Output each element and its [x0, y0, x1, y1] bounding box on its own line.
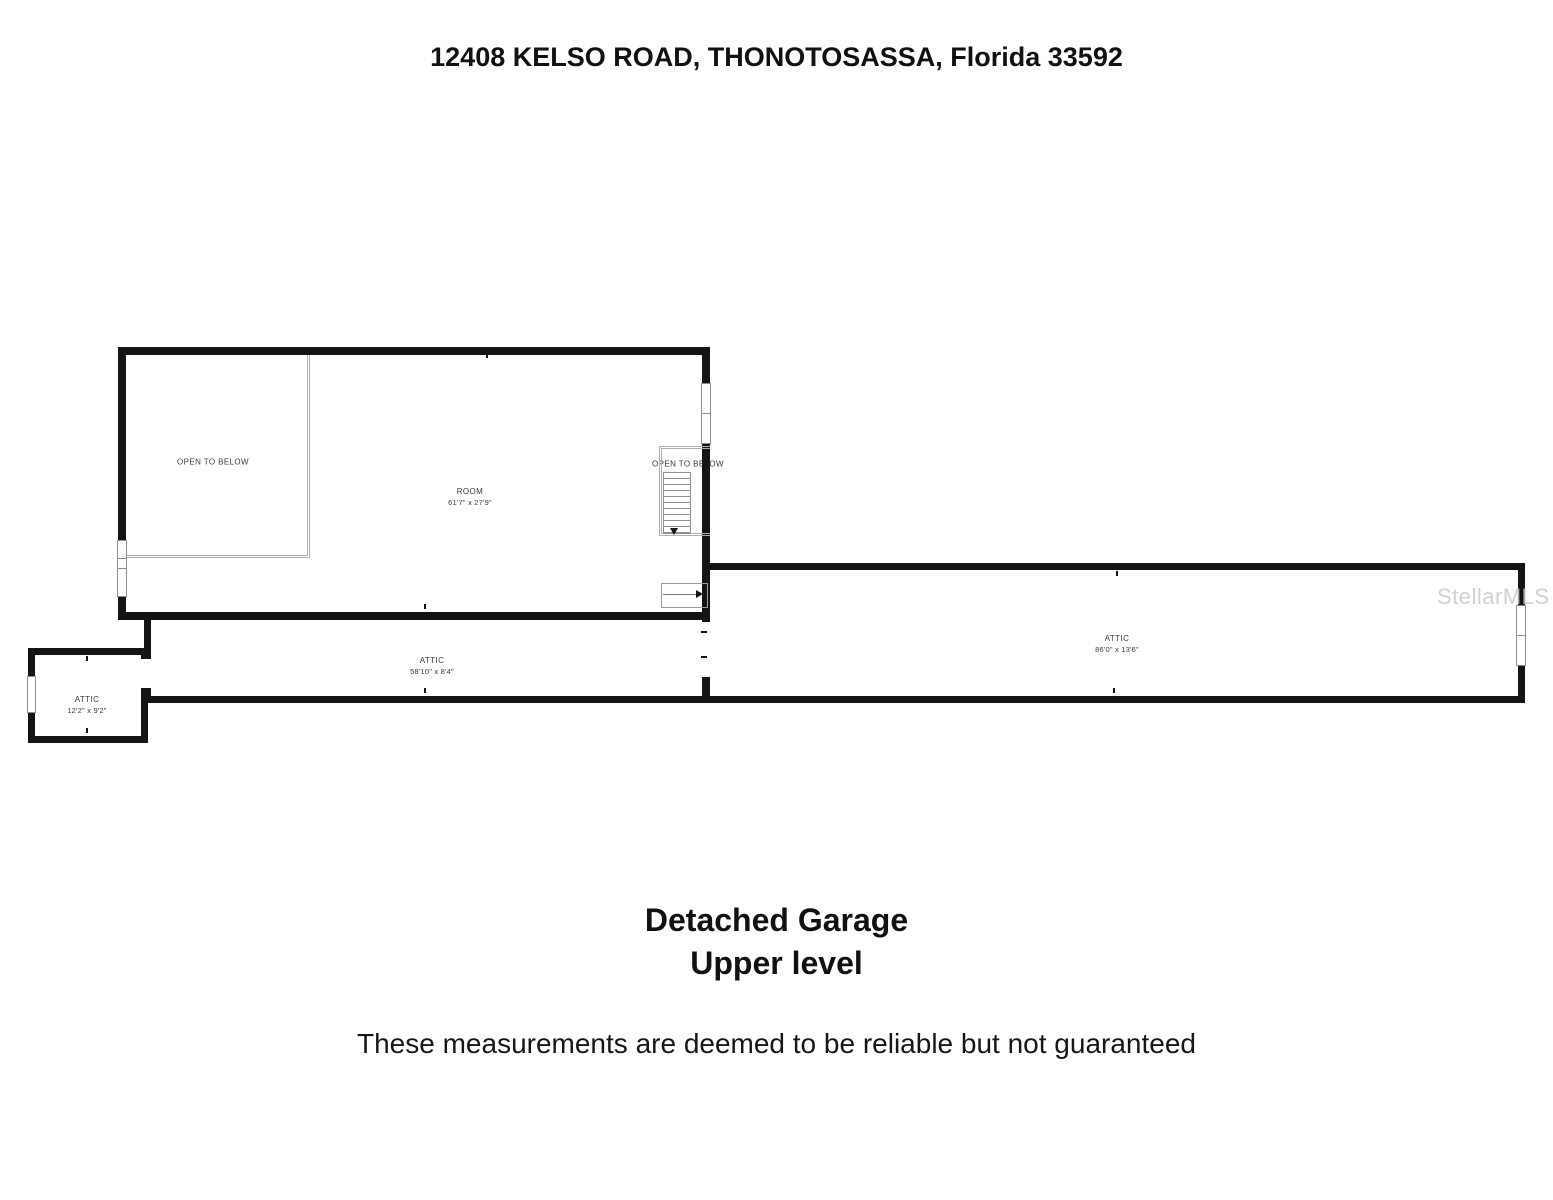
attic-access-arrow-icon: [696, 590, 703, 598]
stair-down-arrow-icon: [670, 528, 678, 535]
window-mullion: [1517, 635, 1525, 636]
wall-tick: [424, 604, 426, 609]
plan-caption: Detached Garage Upper level: [0, 899, 1553, 985]
open-to-below-outline: [126, 355, 310, 558]
caption-line2: Upper level: [0, 942, 1553, 985]
stellar-mls-watermark: StellarMLS: [1437, 584, 1550, 610]
window-main-right: [701, 383, 711, 444]
disclaimer-text: These measurements are deemed to be reli…: [0, 1028, 1553, 1060]
attic-long-walls: [144, 612, 710, 703]
caption-line1: Detached Garage: [0, 899, 1553, 942]
window-attic-small: [27, 676, 36, 713]
attic-access-line: [663, 594, 697, 595]
wall-tick: [1113, 688, 1115, 693]
window-mullion: [118, 558, 126, 559]
window-mullion: [702, 413, 710, 414]
wall-tick: [86, 656, 88, 661]
window-mullion: [118, 568, 126, 569]
wall-tick: [486, 353, 488, 358]
wall-tick: [86, 728, 88, 733]
wall-tick: [1116, 571, 1118, 576]
floor-plan: OPEN TO BELOW ROOM 61'7" x 27'9" OPEN TO…: [0, 0, 1553, 1200]
door-frame-tick: [701, 656, 707, 658]
doorway-opening-small-attic: [139, 659, 153, 688]
window-main-left: [117, 540, 127, 597]
attic-small-walls: [28, 648, 148, 743]
window-attic-right: [1516, 605, 1526, 666]
stair-treads: [663, 472, 691, 534]
door-frame-tick: [701, 631, 707, 633]
wall-tick: [424, 688, 426, 693]
floorplan-page: 12408 KELSO ROAD, THONOTOSASSA, Florida …: [0, 0, 1553, 1200]
attic-wide-walls: [702, 563, 1525, 703]
